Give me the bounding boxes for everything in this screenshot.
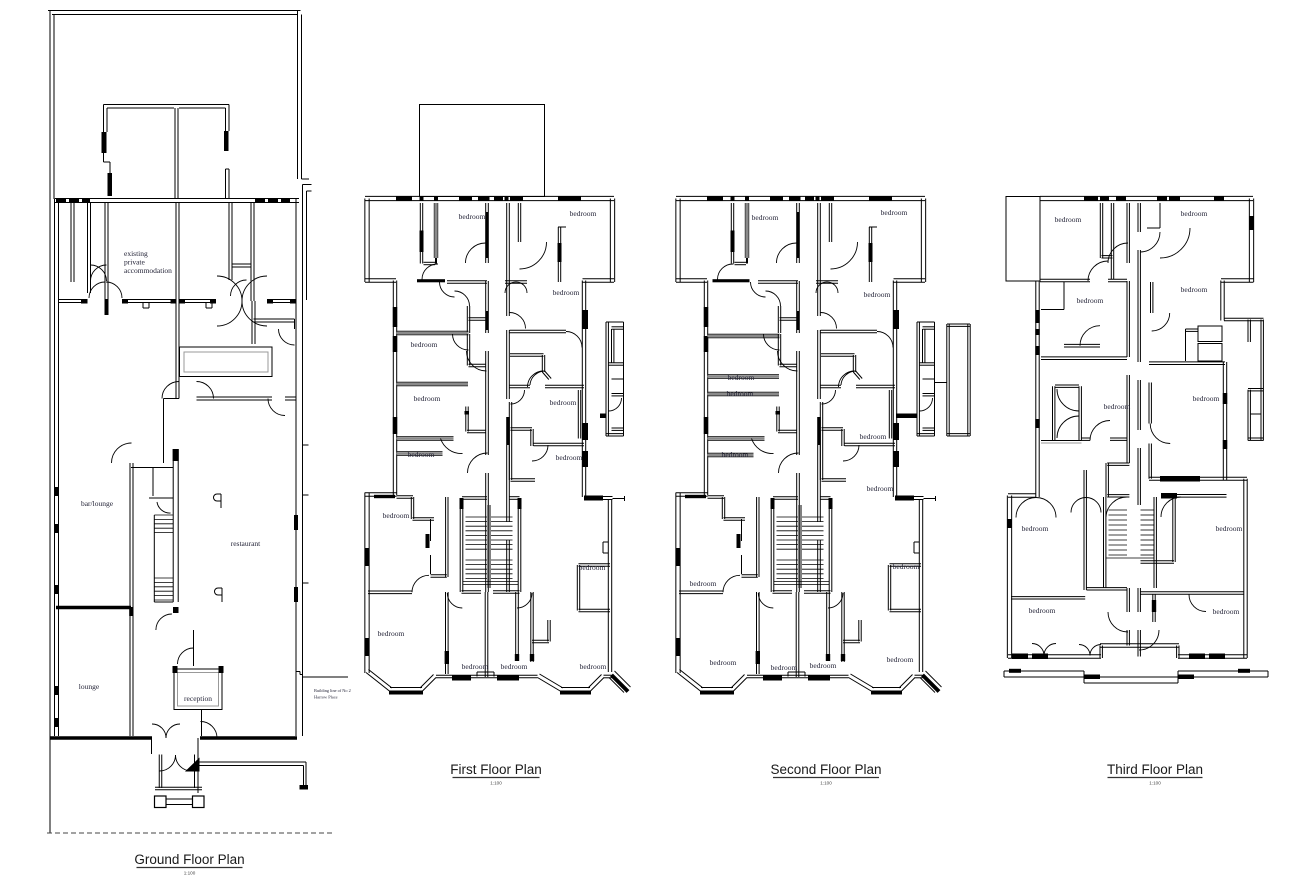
svg-text:bedroom: bedroom bbox=[556, 453, 583, 462]
svg-text:bedroom: bedroom bbox=[690, 579, 717, 588]
svg-text:restaurant: restaurant bbox=[231, 539, 261, 548]
svg-text:bedroom: bedroom bbox=[893, 562, 920, 571]
svg-text:bedroom: bedroom bbox=[1213, 607, 1240, 616]
svg-text:bedroom: bedroom bbox=[1181, 285, 1208, 294]
svg-text:1:100: 1:100 bbox=[820, 781, 832, 786]
svg-text:Harrow Place: Harrow Place bbox=[314, 695, 338, 700]
svg-text:Ground Floor Plan: Ground Floor Plan bbox=[134, 852, 244, 867]
svg-text:accommodation: accommodation bbox=[124, 266, 172, 275]
svg-text:bedroom: bedroom bbox=[580, 662, 607, 671]
svg-text:bedroom: bedroom bbox=[887, 655, 914, 664]
svg-text:reception: reception bbox=[184, 694, 212, 703]
svg-text:bedroom: bedroom bbox=[570, 209, 597, 218]
svg-text:bedroom: bedroom bbox=[579, 563, 606, 572]
svg-text:bedroom: bedroom bbox=[710, 658, 737, 667]
svg-text:bedroom: bedroom bbox=[553, 288, 580, 297]
svg-text:bedroom: bedroom bbox=[1077, 296, 1104, 305]
svg-text:bedroom: bedroom bbox=[501, 662, 528, 671]
svg-text:bedroom: bedroom bbox=[1029, 606, 1056, 615]
svg-text:bedroom: bedroom bbox=[727, 389, 754, 398]
svg-text:bedroom: bedroom bbox=[459, 212, 486, 221]
svg-text:bedroom: bedroom bbox=[1181, 209, 1208, 218]
svg-text:Third Floor Plan: Third Floor Plan bbox=[1107, 762, 1203, 777]
svg-text:bedroom: bedroom bbox=[378, 629, 405, 638]
svg-text:bedroom: bedroom bbox=[860, 432, 887, 441]
svg-text:bedroom: bedroom bbox=[728, 373, 755, 382]
svg-text:bedroom: bedroom bbox=[1193, 394, 1220, 403]
svg-text:1:100: 1:100 bbox=[490, 781, 502, 786]
svg-text:bedroom: bedroom bbox=[414, 394, 441, 403]
svg-text:lounge: lounge bbox=[79, 682, 100, 691]
svg-text:bedroom: bedroom bbox=[771, 663, 798, 672]
svg-text:bedroom: bedroom bbox=[411, 340, 438, 349]
svg-text:1:100: 1:100 bbox=[1149, 781, 1161, 786]
svg-text:1:100: 1:100 bbox=[184, 871, 196, 876]
svg-text:bedroom: bedroom bbox=[1104, 402, 1131, 411]
svg-text:bedroom: bedroom bbox=[752, 213, 779, 222]
svg-text:bedroom: bedroom bbox=[462, 662, 489, 671]
svg-text:bedroom: bedroom bbox=[408, 450, 435, 459]
svg-text:Building line of No 2: Building line of No 2 bbox=[314, 688, 351, 693]
svg-text:First Floor Plan: First Floor Plan bbox=[450, 762, 542, 777]
svg-text:bedroom: bedroom bbox=[867, 484, 894, 493]
svg-text:bedroom: bedroom bbox=[881, 208, 908, 217]
svg-text:bedroom: bedroom bbox=[810, 661, 837, 670]
svg-text:bedroom: bedroom bbox=[722, 450, 749, 459]
svg-text:Second Floor Plan: Second Floor Plan bbox=[770, 762, 881, 777]
svg-text:bedroom: bedroom bbox=[1022, 524, 1049, 533]
svg-text:bedroom: bedroom bbox=[1216, 524, 1243, 533]
svg-text:bedroom: bedroom bbox=[864, 290, 891, 299]
svg-text:bedroom: bedroom bbox=[383, 511, 410, 520]
svg-text:bedroom: bedroom bbox=[1055, 215, 1082, 224]
svg-text:bedroom: bedroom bbox=[550, 398, 577, 407]
svg-text:bar/lounge: bar/lounge bbox=[81, 499, 114, 508]
